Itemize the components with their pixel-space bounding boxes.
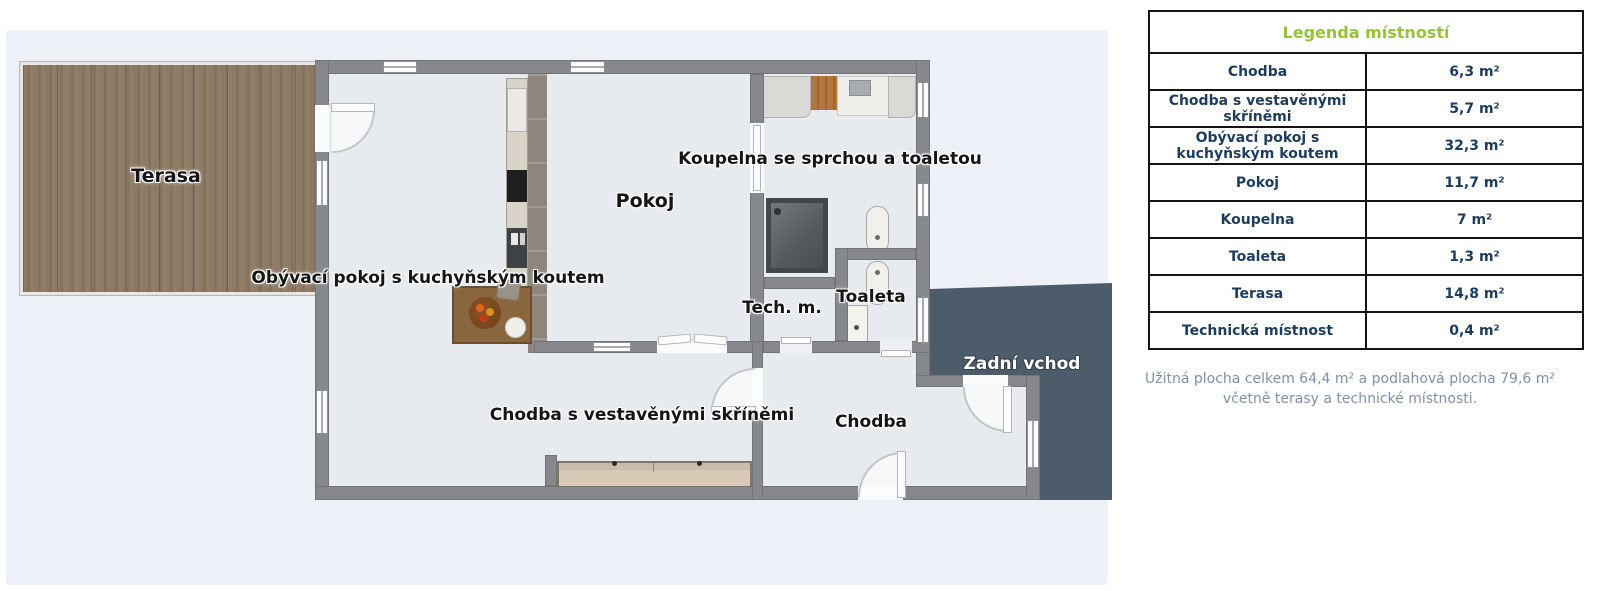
toilet [866, 206, 889, 253]
room-label-zadni-vchod: Zadní vchod [964, 354, 1081, 374]
legend-room-area: 14,8 m² [1366, 275, 1583, 312]
legend-room-area: 32,3 m² [1366, 127, 1583, 164]
legend-room-area: 7 m² [1366, 201, 1583, 238]
washbasin-tap [854, 325, 859, 330]
legend-room-name: Pokoj [1149, 164, 1366, 201]
fruit [476, 304, 484, 312]
wall-hall-top [534, 341, 763, 353]
fruit [480, 314, 488, 322]
room-label-koupelna: Koupelna se sprchou a toaletou [678, 149, 982, 169]
window [1027, 420, 1039, 468]
legend-row: Pokoj11,7 m² [1149, 164, 1583, 201]
window [917, 297, 929, 343]
legend-room-name: Koupelna [1149, 201, 1366, 238]
room-label-chodba: Chodba [835, 412, 907, 432]
fridge [507, 88, 527, 132]
legend-row: Obývací pokoj s kuchyňským koutem32,3 m² [1149, 127, 1583, 164]
stove [507, 170, 527, 202]
room-label-terasa: Terasa [131, 165, 201, 187]
legend-footer-line1: Užitná plocha celkem 64,4 m² a podlahová… [1114, 369, 1586, 389]
wardrobe-handle [612, 461, 617, 466]
window [917, 183, 929, 217]
entrance-door-leaf [897, 451, 906, 498]
legend-room-area: 5,7 m² [1366, 90, 1583, 127]
shower [766, 198, 828, 273]
legend-room-area: 1,3 m² [1366, 238, 1583, 275]
legend-room-name: Terasa [1149, 275, 1366, 312]
wardrobe-top-strip [559, 463, 750, 470]
legend-footer-line2: včetně terasy a technické místnosti. [1114, 389, 1586, 409]
wall-stub-wardrobe [545, 455, 557, 486]
room-label-chodba-vestavene: Chodba s vestavěnými skříněmi [490, 405, 794, 425]
legend-room-name: Chodba s vestavěnými skříněmi [1149, 90, 1366, 127]
legend-room-name: Toaleta [1149, 238, 1366, 275]
bathroom-cabinet [757, 76, 811, 118]
legend-row: Technická místnost0,4 m² [1149, 312, 1583, 349]
wall-bottom [315, 486, 1040, 500]
window [570, 61, 605, 73]
legend-room-area: 11,7 m² [1366, 164, 1583, 201]
window [383, 61, 417, 73]
terrace-door-leaf [331, 103, 375, 112]
window [316, 390, 328, 434]
chair-round [505, 317, 526, 338]
legend-room-area: 0,4 m² [1366, 312, 1583, 349]
toilet-door-leaf [881, 350, 911, 357]
bathroom-sink [849, 80, 871, 96]
shower-drain [774, 208, 781, 215]
legend-row: Chodba6,3 m² [1149, 53, 1583, 90]
legend-title: Legenda místností [1149, 11, 1583, 53]
legend-room-name: Technická místnost [1149, 312, 1366, 349]
legend-room-name: Chodba [1149, 53, 1366, 90]
window [917, 82, 929, 118]
wardrobe-divider [653, 463, 654, 472]
legend-row: Terasa14,8 m² [1149, 275, 1583, 312]
window [593, 342, 631, 352]
legend-room-name: Obývací pokoj s kuchyňským koutem [1149, 127, 1366, 164]
room-label-pokoj: Pokoj [616, 190, 675, 212]
legend-footer: Užitná plocha celkem 64,4 m² a podlahová… [1114, 369, 1586, 409]
room-label-obyvaci-pokoj: Obývací pokoj s kuchyňským koutem [251, 268, 604, 288]
wardrobe-handle [697, 461, 702, 466]
toilet-flush [875, 270, 880, 275]
room-label-toaleta: Toaleta [836, 287, 905, 307]
legend-row: Koupelna7 m² [1149, 201, 1583, 238]
legend-room-area: 6,3 m² [1366, 53, 1583, 90]
terrace-door-opening [315, 105, 329, 152]
bathroom-wood-shelf [811, 76, 837, 110]
tech-room-door-leaf [781, 337, 811, 344]
room-label-tech-m: Tech. m. [742, 298, 822, 318]
back-door-opening [963, 375, 1008, 387]
toilet-flush [875, 235, 880, 240]
fruit-bowl [469, 297, 501, 329]
legend-header-row: Legenda místností [1149, 11, 1583, 53]
window [316, 160, 328, 206]
legend-row: Toaleta1,3 m² [1149, 238, 1583, 275]
bathroom-cabinet [888, 76, 916, 118]
back-door-leaf [1003, 386, 1012, 433]
legend-table: Legenda místností Chodba6,3 m² Chodba s … [1148, 10, 1584, 350]
wall-tech-top [764, 277, 835, 289]
legend-row: Chodba s vestavěnými skříněmi5,7 m² [1149, 90, 1583, 127]
kitchen-sink-bowl [520, 233, 525, 245]
floorplan-screenshot: Terasa Obývací pokoj s kuchyňským koutem… [0, 0, 1600, 591]
kitchen-sink-bowl [511, 233, 518, 245]
